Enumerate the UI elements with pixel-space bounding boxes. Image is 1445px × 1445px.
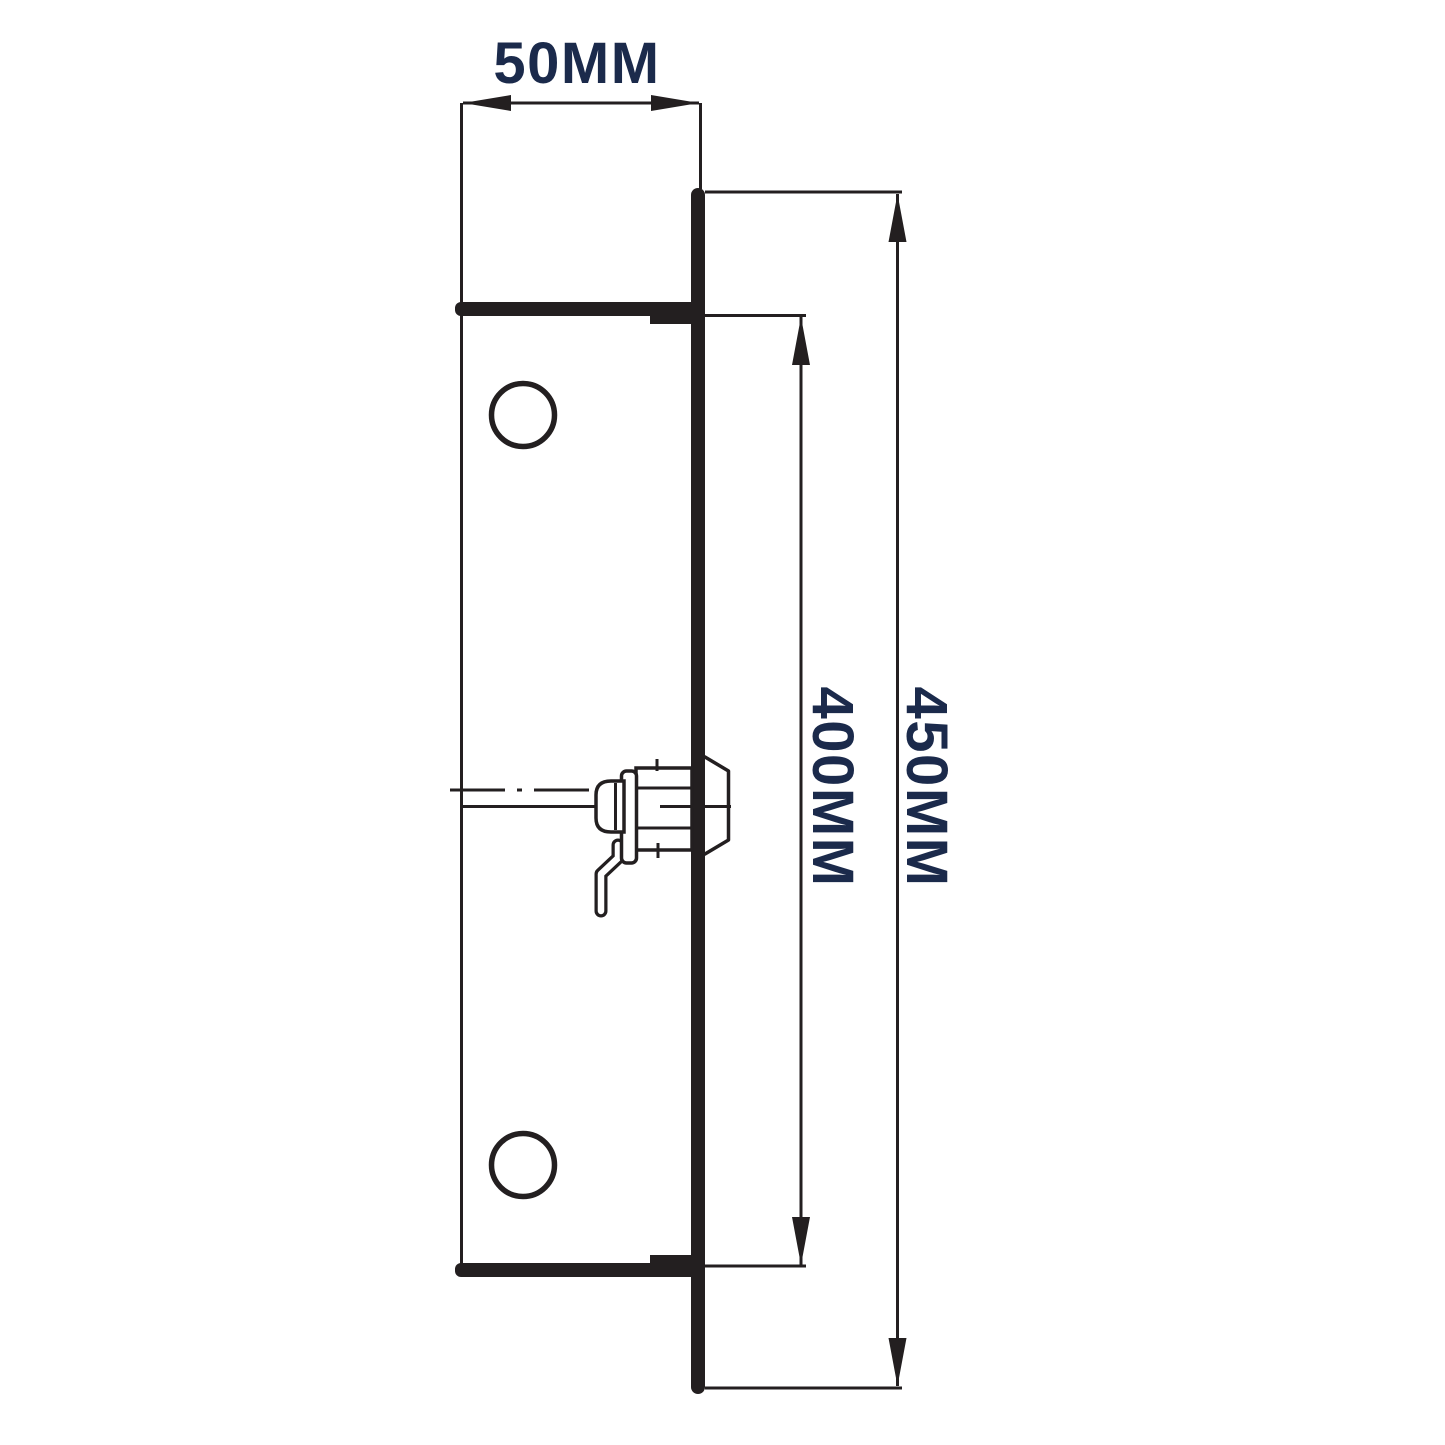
inner-height-arrow-down-icon <box>792 1217 810 1265</box>
inner-height-arrow-up-icon <box>792 317 810 365</box>
top-fixing-hole <box>492 384 555 447</box>
extension-lines <box>462 103 701 1271</box>
overall-height-arrow-up-icon <box>889 194 907 242</box>
width-arrow-right-icon <box>651 95 699 111</box>
technical-drawing: 50MM 400MM 450MM <box>0 0 1445 1445</box>
drawing-canvas: 50MM 400MM 450MM <box>0 0 1445 1445</box>
dimension-width-50mm: 50MM <box>463 31 699 111</box>
bracket-bottom-bar <box>455 1263 701 1277</box>
bracket-top-bar <box>455 302 701 316</box>
lock-mechanism <box>450 757 731 911</box>
width-dimension-label: 50MM <box>493 31 660 96</box>
bolt-head <box>596 781 624 832</box>
bolt-barrel <box>636 768 692 850</box>
overall-height-arrow-down-icon <box>889 1338 907 1386</box>
bottom-fixing-hole <box>492 1134 555 1197</box>
lever-handle-fill <box>601 845 618 911</box>
inner-height-dimension-label: 400MM <box>800 687 865 888</box>
overall-height-dimension-label: 450MM <box>894 687 959 888</box>
width-arrow-left-icon <box>463 95 511 111</box>
